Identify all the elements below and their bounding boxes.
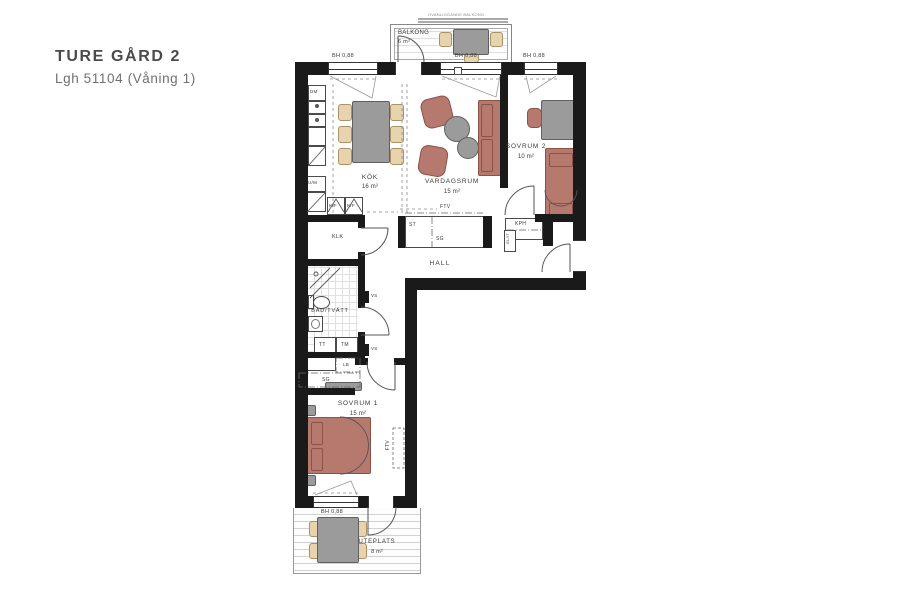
dining-chair	[338, 148, 352, 165]
washbasin	[308, 316, 323, 332]
wall-segment	[573, 272, 586, 290]
dining-chair	[390, 104, 404, 121]
sink-basin	[308, 114, 326, 127]
wall-segment	[422, 62, 440, 75]
kitchen-counter	[308, 127, 326, 146]
wall-segment	[502, 62, 524, 75]
page-title: TURE GÅRD 2	[55, 48, 196, 66]
room-label-sovrum2: SOVRUM 2	[496, 143, 556, 150]
sink-basin	[308, 101, 326, 114]
label-coat-rack: KPH	[515, 221, 526, 227]
label-vs-box: VS	[371, 293, 378, 298]
balcony-table	[453, 29, 489, 55]
dining-chair	[338, 104, 352, 121]
label-el-it-cabinet: EL/IT	[506, 233, 510, 244]
label-fridge-freezer: K/F	[347, 203, 355, 208]
apartment-subtitle: Lgh 51104 (Våning 1)	[55, 71, 196, 86]
window	[328, 62, 378, 75]
label-vs-box: VS	[371, 346, 378, 351]
wall-segment	[295, 259, 365, 266]
desk-chair	[527, 108, 542, 128]
wall-segment	[295, 496, 313, 508]
wall-segment	[394, 496, 417, 508]
wall-segment	[295, 62, 308, 508]
wall-segment	[394, 358, 417, 365]
room-label-sovrum1: SOVRUM 1	[328, 400, 388, 407]
entrance-door-opening	[573, 240, 586, 272]
wall-segment	[359, 496, 368, 508]
room-label-kok: KÖK	[340, 174, 400, 181]
window-height-label: BH 0,88	[321, 509, 343, 515]
vent	[454, 67, 462, 75]
label-ftv-box: FTV	[385, 440, 391, 450]
area-label-balkong: 6 m²	[398, 39, 410, 45]
vs-shunt-box	[362, 291, 369, 303]
dining-table	[352, 101, 390, 163]
label-sliding-wardrobe-2: SG	[322, 377, 330, 383]
wall-segment	[407, 278, 573, 290]
stove	[308, 146, 326, 166]
area-label-sovrum1: 15 m²	[328, 411, 388, 417]
label-cleaning-closet: ST	[409, 222, 416, 228]
area-label-uteplats: 8 m²	[347, 549, 407, 555]
room-label-uteplats: UTEPLATS	[347, 539, 407, 545]
window-height-label: BH 0,88	[523, 53, 545, 59]
window-height-label: BH 0,88	[332, 53, 354, 59]
hall-closet	[405, 216, 492, 248]
area-label-sovrum2: 10 m²	[496, 154, 556, 160]
armchair	[417, 144, 450, 178]
balcony-chair	[439, 32, 452, 47]
plan-linework	[0, 0, 900, 600]
tall-cabinet	[307, 192, 326, 212]
window	[524, 62, 558, 75]
room-label-balkong: BALKONG	[398, 30, 429, 36]
wall-segment	[405, 278, 417, 508]
room-label-bad: BAD/TVÄTT	[301, 308, 359, 314]
coffee-table	[457, 137, 479, 159]
label-dishwasher: DM	[310, 89, 318, 94]
wall-segment	[295, 388, 355, 395]
floor-plan: TURE GÅRD 2 Lgh 51104 (Våning 1)	[0, 0, 900, 600]
vs-shunt-box	[362, 344, 369, 356]
wall-segment	[543, 216, 553, 246]
sofa	[478, 100, 501, 176]
window-height-label: BH 0,88	[455, 53, 477, 59]
title-block: TURE GÅRD 2 Lgh 51104 (Våning 1)	[55, 48, 196, 86]
wall-segment	[500, 75, 508, 188]
window	[313, 496, 359, 508]
room-label-vardagsrum: VARDAGSRUM	[412, 178, 492, 185]
desk	[541, 100, 575, 140]
patio-door-opening	[368, 496, 394, 508]
balcony-door-opening	[395, 62, 422, 75]
dining-chair	[390, 148, 404, 165]
room-label-klk: KLK	[332, 234, 343, 240]
dining-chair	[390, 126, 404, 143]
label-ftv-box: FTV	[440, 204, 450, 210]
upper-balcony-note: OVANLIGGANDE BALKONG	[428, 12, 484, 17]
area-label-kok: 16 m²	[340, 184, 400, 190]
wall-segment	[295, 215, 365, 222]
area-label-vardagsrum: 15 m²	[412, 189, 492, 195]
window	[440, 62, 502, 75]
wall-segment	[358, 215, 365, 228]
bed-double	[307, 417, 371, 474]
dining-chair	[338, 126, 352, 143]
label-fridge-freezer: K/F	[329, 203, 337, 208]
label-linen-cabinet: LB	[343, 362, 349, 367]
label-dryer: TT	[319, 342, 326, 348]
label-washing-machine: TM	[341, 342, 349, 348]
wall-segment	[398, 216, 405, 248]
wall-segment	[483, 216, 492, 248]
wall-segment	[378, 62, 395, 75]
room-label-hall: HALL	[410, 260, 470, 267]
label-oven-microwave: U/M	[308, 180, 317, 185]
balcony-chair	[490, 32, 503, 47]
wall-segment	[355, 358, 368, 365]
label-sliding-wardrobe: SG	[436, 236, 444, 242]
